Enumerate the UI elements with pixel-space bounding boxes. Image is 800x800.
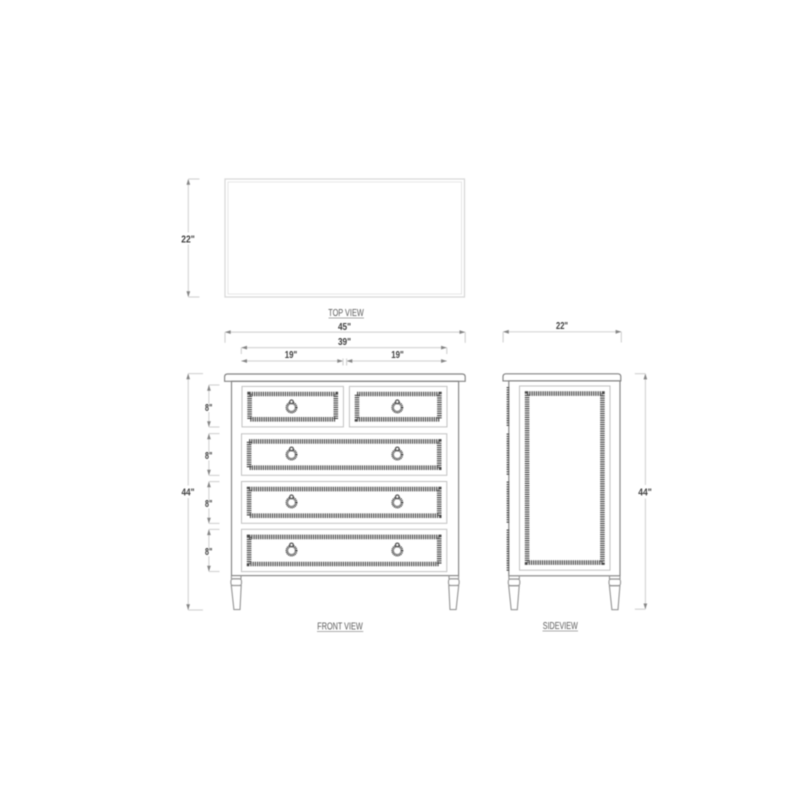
svg-text:22": 22" bbox=[556, 320, 568, 332]
svg-text:19": 19" bbox=[391, 349, 404, 361]
svg-text:8": 8" bbox=[205, 546, 212, 558]
svg-text:8": 8" bbox=[205, 450, 212, 462]
svg-text:44": 44" bbox=[638, 486, 652, 498]
svg-text:8": 8" bbox=[205, 402, 212, 414]
svg-text:39": 39" bbox=[338, 336, 351, 348]
svg-text:19": 19" bbox=[285, 349, 298, 361]
svg-text:22": 22" bbox=[181, 234, 195, 246]
svg-text:45": 45" bbox=[338, 321, 351, 333]
svg-text:SIDEVIEW: SIDEVIEW bbox=[543, 621, 578, 632]
svg-text:TOP VIEW: TOP VIEW bbox=[328, 308, 364, 319]
svg-text:8": 8" bbox=[205, 498, 212, 510]
svg-text:44": 44" bbox=[182, 486, 195, 498]
svg-text:FRONT VIEW: FRONT VIEW bbox=[317, 621, 363, 632]
